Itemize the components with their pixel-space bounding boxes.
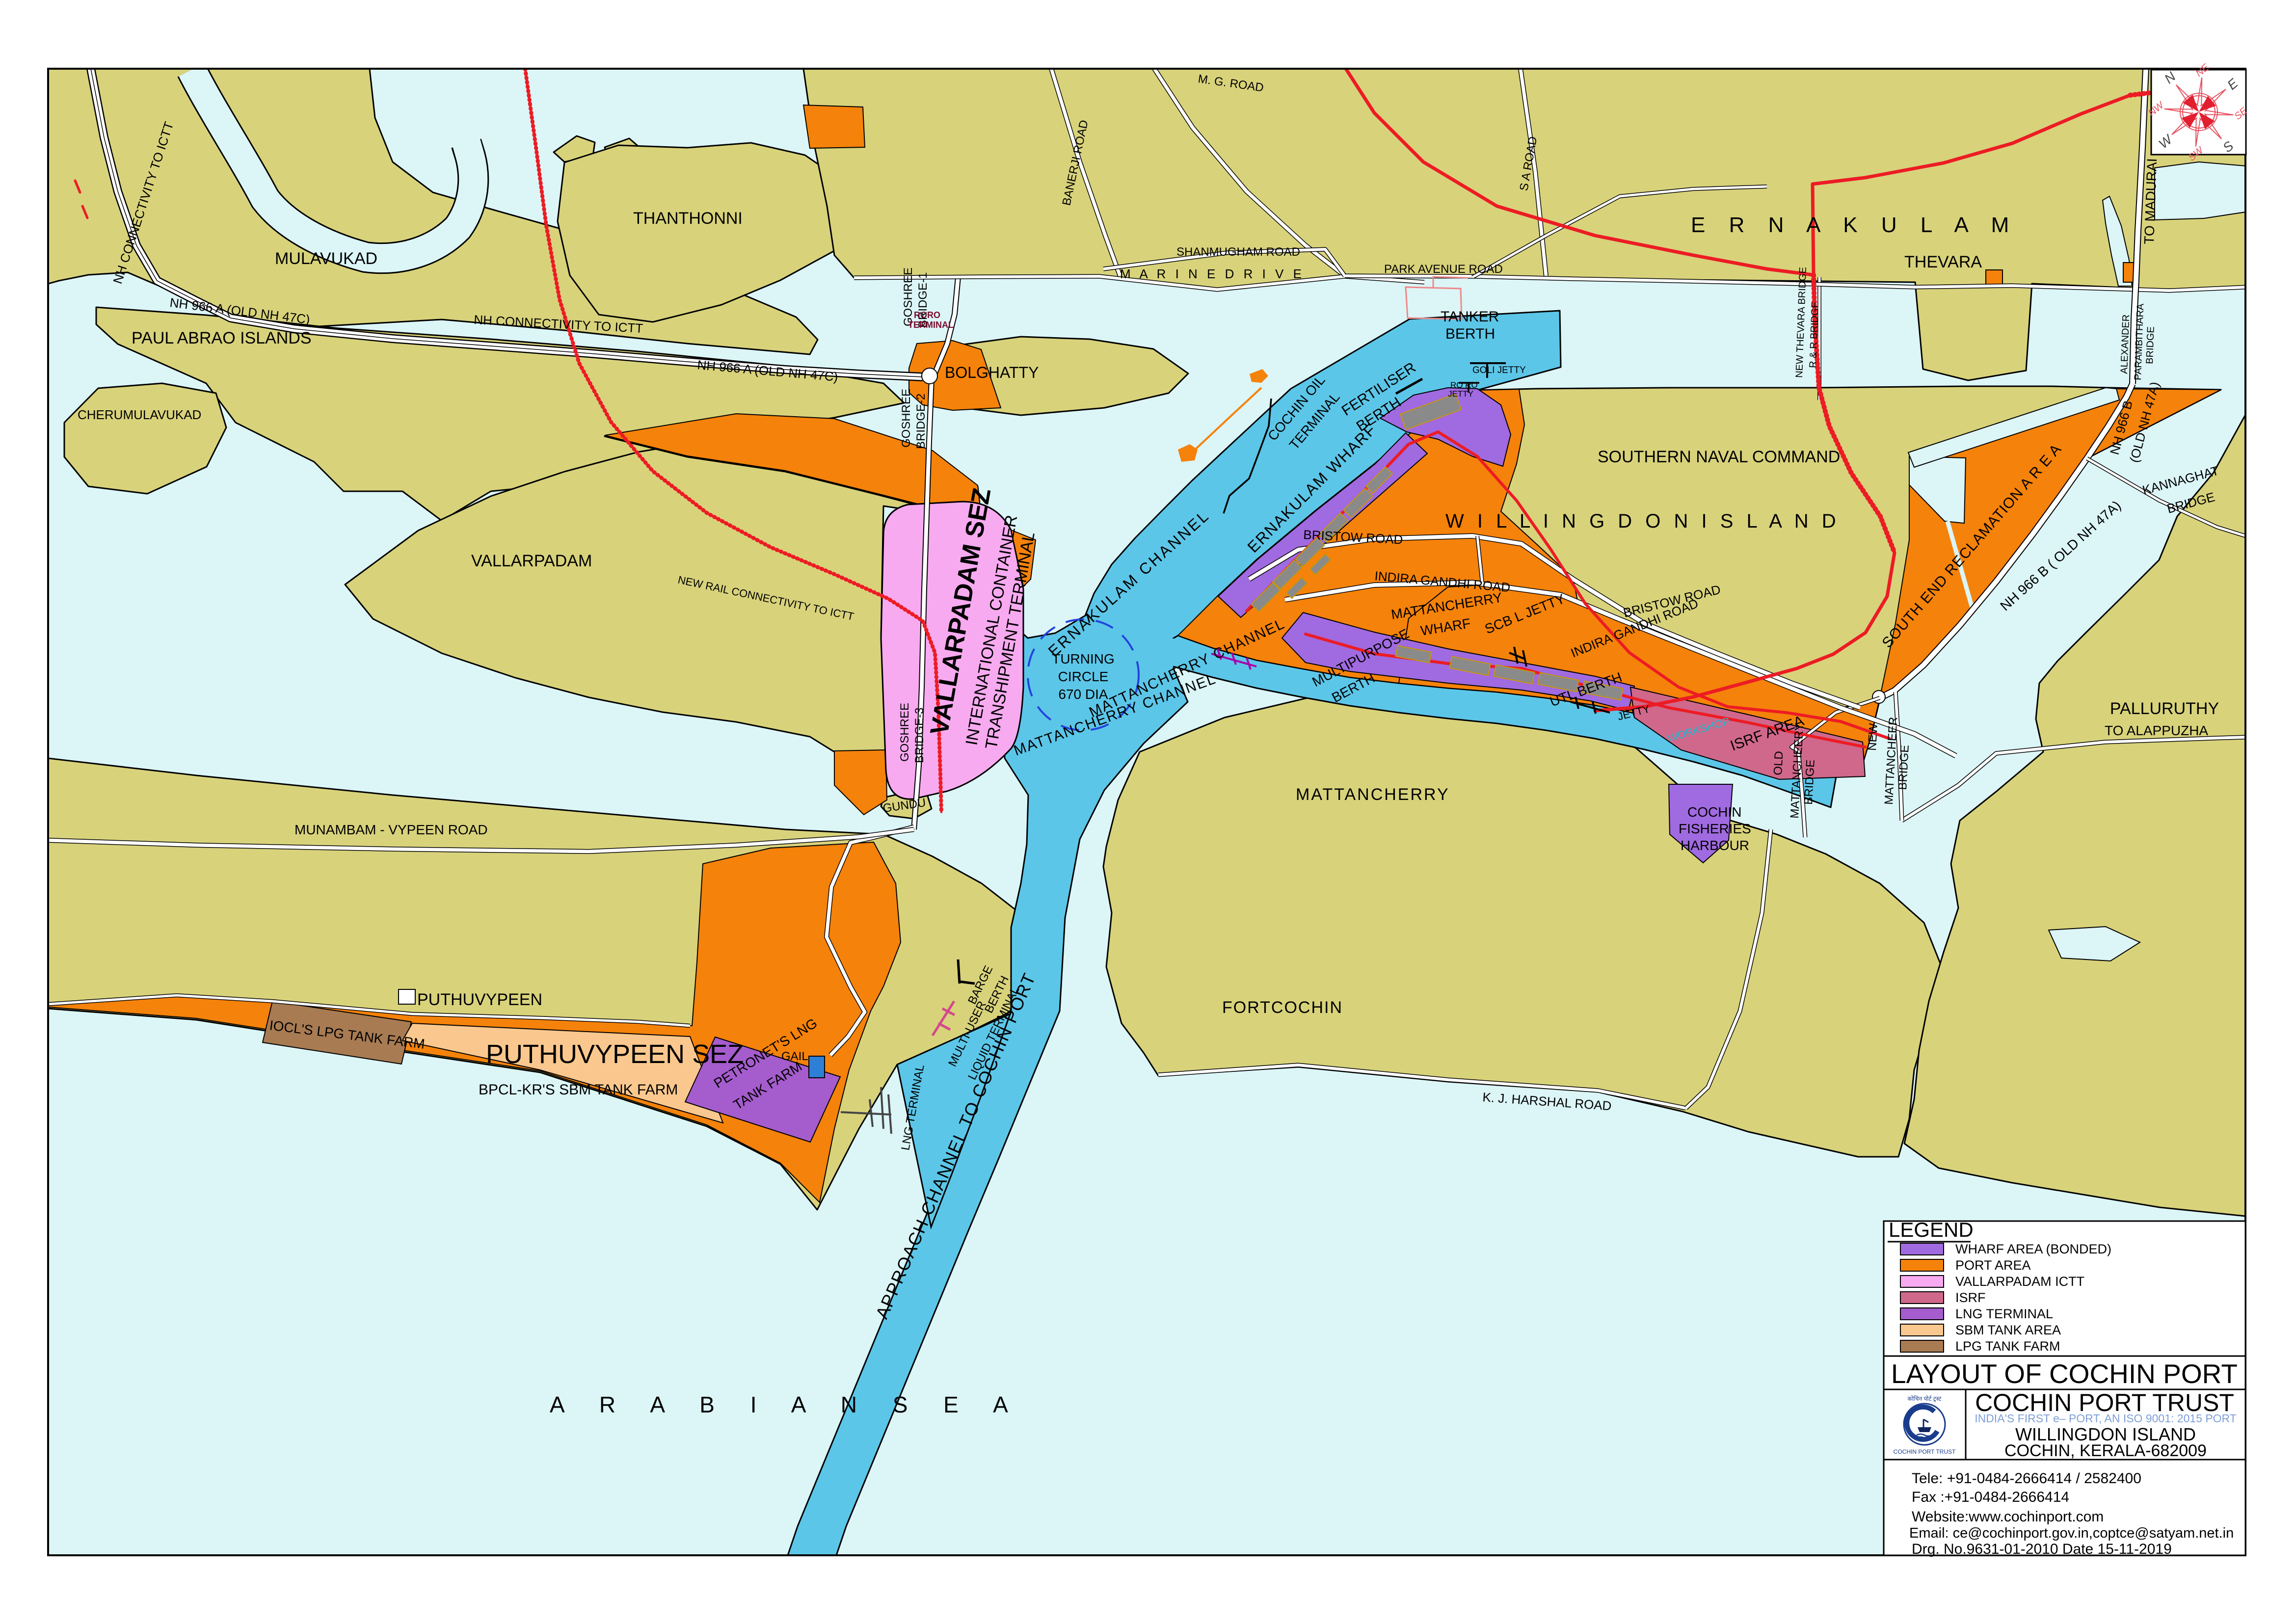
svg-text:PARK AVENUE ROAD: PARK AVENUE ROAD [1384, 263, 1503, 276]
svg-text:Drg. No.9631-01-2010 Date 15-1: Drg. No.9631-01-2010 Date 15-11-2019 [1912, 1541, 2172, 1557]
svg-text:OLD: OLD [1771, 751, 1786, 776]
svg-text:BPCL-KR'S SBM TANK FARM: BPCL-KR'S SBM TANK FARM [479, 1082, 678, 1098]
svg-text:BRIDGE: BRIDGE [1802, 759, 1817, 805]
svg-text:GOSHREE: GOSHREE [902, 267, 915, 326]
svg-text:BOLGHATTY: BOLGHATTY [945, 364, 1039, 381]
svg-text:LPG TANK FARM: LPG TANK FARM [1955, 1339, 2060, 1354]
svg-text:BERTH: BERTH [1445, 326, 1495, 342]
svg-text:MULAVUKAD: MULAVUKAD [275, 249, 377, 268]
svg-text:PALLURUTHY: PALLURUTHY [2110, 699, 2219, 718]
svg-text:THEVARA: THEVARA [1904, 253, 1982, 271]
svg-text:LEGEND: LEGEND [1889, 1218, 1974, 1241]
svg-text:CHERUMULAVUKAD: CHERUMULAVUKAD [78, 407, 201, 422]
svg-text:Website:www.cochinport.com: Website:www.cochinport.com [1912, 1509, 2104, 1525]
svg-text:GOSHREE: GOSHREE [900, 389, 913, 448]
svg-text:W I L L I N G D O N I S L: W I L L I N G D O N I S L A N D [1445, 510, 1840, 532]
svg-text:GOLI JETTY: GOLI JETTY [1472, 365, 1526, 375]
svg-text:TO ALAPPUZHA: TO ALAPPUZHA [2105, 723, 2208, 738]
svg-text:FORTCOCHIN: FORTCOCHIN [1222, 998, 1343, 1017]
svg-text:E R N A K U L A M: E R N A K U L A M [1691, 213, 2018, 237]
svg-text:COCHIN PORT TRUST: COCHIN PORT TRUST [1894, 1448, 1956, 1455]
svg-text:NEW: NEW [1866, 723, 1880, 751]
svg-text:ISRF: ISRF [1955, 1290, 1986, 1305]
svg-text:Email: ce@cochinport.gov.in,co: Email: ce@cochinport.gov.in,coptce@satya… [1909, 1525, 2234, 1541]
svg-text:PORT AREA: PORT AREA [1955, 1258, 2031, 1273]
svg-text:BRIDGE: BRIDGE [1896, 745, 1912, 790]
svg-text:GAIL: GAIL [781, 1050, 808, 1063]
svg-text:WHARF AREA (BONDED): WHARF AREA (BONDED) [1955, 1242, 2111, 1256]
svg-text:RO RO: RO RO [1450, 380, 1478, 390]
svg-text:COCHIN, KERALA-682009: COCHIN, KERALA-682009 [2004, 1441, 2207, 1460]
svg-text:MATTANCHERRY: MATTANCHERRY [1296, 785, 1450, 804]
svg-text:ALEXANDER: ALEXANDER [2119, 314, 2132, 374]
svg-text:TO MADURAI: TO MADURAI [2141, 158, 2160, 244]
svg-text:HARBOUR: HARBOUR [1681, 838, 1749, 853]
svg-text:Tele: +91-0484-2666414 / 25824: Tele: +91-0484-2666414 / 2582400 [1912, 1470, 2141, 1487]
svg-text:RORO: RORO [914, 310, 940, 320]
svg-text:SBM TANK AREA: SBM TANK AREA [1955, 1323, 2061, 1337]
svg-text:SHANMUGHAM ROAD: SHANMUGHAM ROAD [1176, 245, 1300, 259]
svg-text:LNG TERMINAL: LNG TERMINAL [1955, 1306, 2053, 1321]
svg-text:BRIDGE-2: BRIDGE-2 [914, 394, 928, 449]
svg-text:M A R I N E D R I V E: M A R I N E D R I V E [1120, 266, 1305, 281]
svg-text:VALLARPADAM ICTT: VALLARPADAM ICTT [1955, 1274, 2084, 1289]
svg-text:COCHIN: COCHIN [1687, 804, 1741, 820]
svg-text:Fax :+91-0484-2666414: Fax :+91-0484-2666414 [1912, 1489, 2069, 1505]
svg-text:कोचिन पोर्ट ट्रस्ट: कोचिन पोर्ट ट्रस्ट [1907, 1395, 1942, 1402]
svg-text:PAUL ABRAO ISLANDS: PAUL ABRAO ISLANDS [132, 329, 312, 347]
svg-text:CIRCLE: CIRCLE [1058, 669, 1109, 684]
svg-text:MUNAMBAM - VYPEEN ROAD: MUNAMBAM - VYPEEN ROAD [294, 822, 488, 837]
svg-text:BRIDGE: BRIDGE [2144, 326, 2157, 364]
svg-text:FISHERIES: FISHERIES [1679, 821, 1751, 836]
svg-text:GOSHREE: GOSHREE [898, 703, 911, 762]
svg-text:TANKER: TANKER [1441, 309, 1499, 325]
svg-text:LAYOUT OF COCHIN PORT: LAYOUT OF COCHIN PORT [1891, 1358, 2238, 1389]
svg-text:INDIA'S FIRST e– PORT, AN ISO: INDIA'S FIRST e– PORT, AN ISO 9001: 2015… [1975, 1412, 2237, 1425]
svg-text:PUTHUVYPEEN SEZ: PUTHUVYPEEN SEZ [486, 1039, 744, 1069]
svg-text:PUTHUVYPEEN: PUTHUVYPEEN [417, 990, 542, 1009]
svg-text:BRIDGE-3: BRIDGE-3 [913, 708, 926, 763]
svg-text:JETTY: JETTY [1448, 389, 1473, 399]
svg-text:TERMINAL: TERMINAL [908, 320, 954, 330]
svg-text:THANTHONNI: THANTHONNI [633, 209, 743, 228]
svg-text:SOUTHERN NAVAL COMMAND: SOUTHERN NAVAL COMMAND [1598, 448, 1840, 466]
svg-text:A R A B I A N S E A: A R A B I A N S E A [550, 1392, 1023, 1417]
svg-text:VALLARPADAM: VALLARPADAM [471, 552, 592, 570]
